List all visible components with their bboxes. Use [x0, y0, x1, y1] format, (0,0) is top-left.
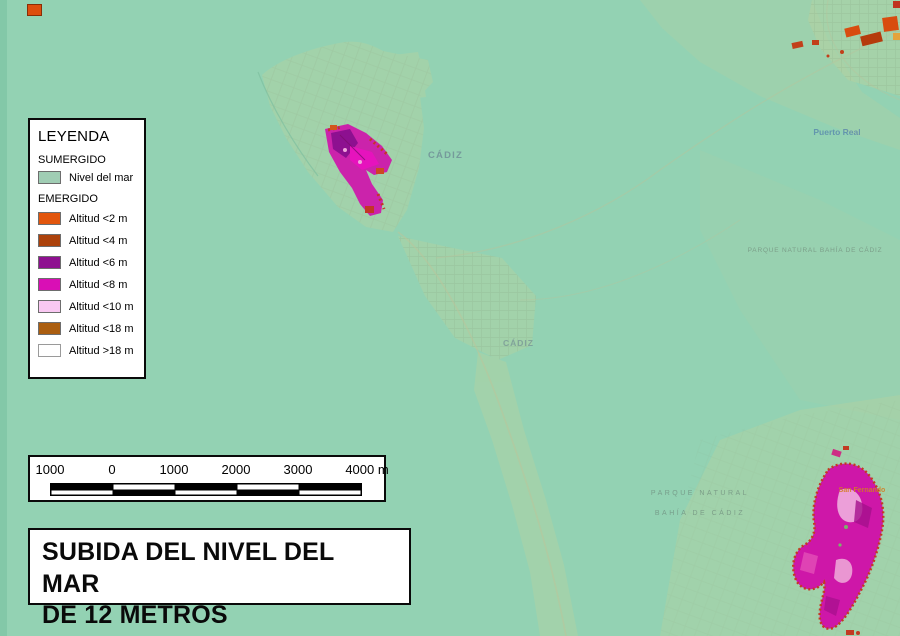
scale-label-2000: 2000 — [222, 462, 251, 477]
legend-label-nivel-del-mar: Nivel del mar — [69, 172, 133, 184]
map-title-panel: SUBIDA DEL NIVEL DEL MAR DE 12 METROS — [28, 528, 411, 605]
legend-swatch-altitud-over-18 — [38, 344, 61, 357]
map-document: CÁDIZ CÁDIZ Puerto Real PARQUE NATURAL B… — [0, 0, 900, 636]
map-label-bahia-de-cadiz: BAHÍA DE CÁDIZ — [655, 508, 745, 517]
legend-item-altitud-6: Altitud <6 m — [38, 256, 139, 269]
scale-label-1000: 1000 — [160, 462, 189, 477]
legend-swatch-nivel-del-mar — [38, 171, 61, 184]
legend-swatch-altitud-8 — [38, 278, 61, 291]
legend-swatch-altitud-18 — [38, 322, 61, 335]
legend-label-altitud-18: Altitud <18 m — [69, 323, 134, 335]
legend-label-altitud-6: Altitud <6 m — [69, 257, 127, 269]
legend-swatch-altitud-10 — [38, 300, 61, 313]
map-label-cadiz-north: CÁDIZ — [428, 150, 463, 161]
legend-title: LEYENDA — [38, 128, 139, 145]
map-label-san-fernando: San Fernando — [839, 487, 886, 494]
map-label-cadiz-south: CÁDIZ — [503, 338, 534, 348]
orange-square-marker — [27, 4, 42, 16]
scale-label-3000: 3000 — [284, 462, 313, 477]
legend-label-altitud-8: Altitud <8 m — [69, 279, 127, 291]
map-title-line-2: DE 12 METROS — [42, 600, 397, 632]
scale-bar-graphic — [50, 483, 362, 496]
legend-swatch-altitud-4 — [38, 234, 61, 247]
scale-bar-row-bottom — [51, 490, 361, 496]
legend-section-sumergido: SUMERGIDO — [38, 154, 139, 166]
legend-item-altitud-10: Altitud <10 m — [38, 300, 139, 313]
legend-label-altitud-over-18: Altitud >18 m — [69, 345, 134, 357]
legend-label-altitud-2: Altitud <2 m — [69, 213, 127, 225]
legend-section-emergido: EMERGIDO — [38, 193, 139, 205]
legend-item-nivel-del-mar: Nivel del mar — [38, 171, 139, 184]
map-label-parque-natural: PARQUE NATURAL — [651, 490, 749, 497]
legend-label-altitud-10: Altitud <10 m — [69, 301, 134, 313]
legend-panel: LEYENDA SUMERGIDO Nivel del mar EMERGIDO… — [28, 118, 146, 379]
legend-item-altitud-2: Altitud <2 m — [38, 212, 139, 225]
legend-item-altitud-over-18: Altitud >18 m — [38, 344, 139, 357]
legend-swatch-altitud-2 — [38, 212, 61, 225]
scale-label-0: 0 — [108, 462, 115, 477]
map-label-puerto-real: Puerto Real — [813, 127, 860, 137]
legend-item-altitud-18: Altitud <18 m — [38, 322, 139, 335]
left-edge-strip — [0, 0, 7, 636]
legend-item-altitud-4: Altitud <4 m — [38, 234, 139, 247]
legend-label-altitud-4: Altitud <4 m — [69, 235, 127, 247]
scale-label-minus-1000: 1000 — [36, 462, 65, 477]
legend-item-altitud-8: Altitud <8 m — [38, 278, 139, 291]
map-title-line-1: SUBIDA DEL NIVEL DEL MAR — [42, 537, 397, 600]
scale-bar-panel: 1000 0 1000 2000 3000 4000 m — [28, 455, 386, 502]
scale-label-4000m: 4000 m — [345, 462, 388, 477]
map-label-parque-natural-bahia: PARQUE NATURAL BAHÍA DE CÁDIZ — [748, 245, 883, 254]
legend-swatch-altitud-6 — [38, 256, 61, 269]
